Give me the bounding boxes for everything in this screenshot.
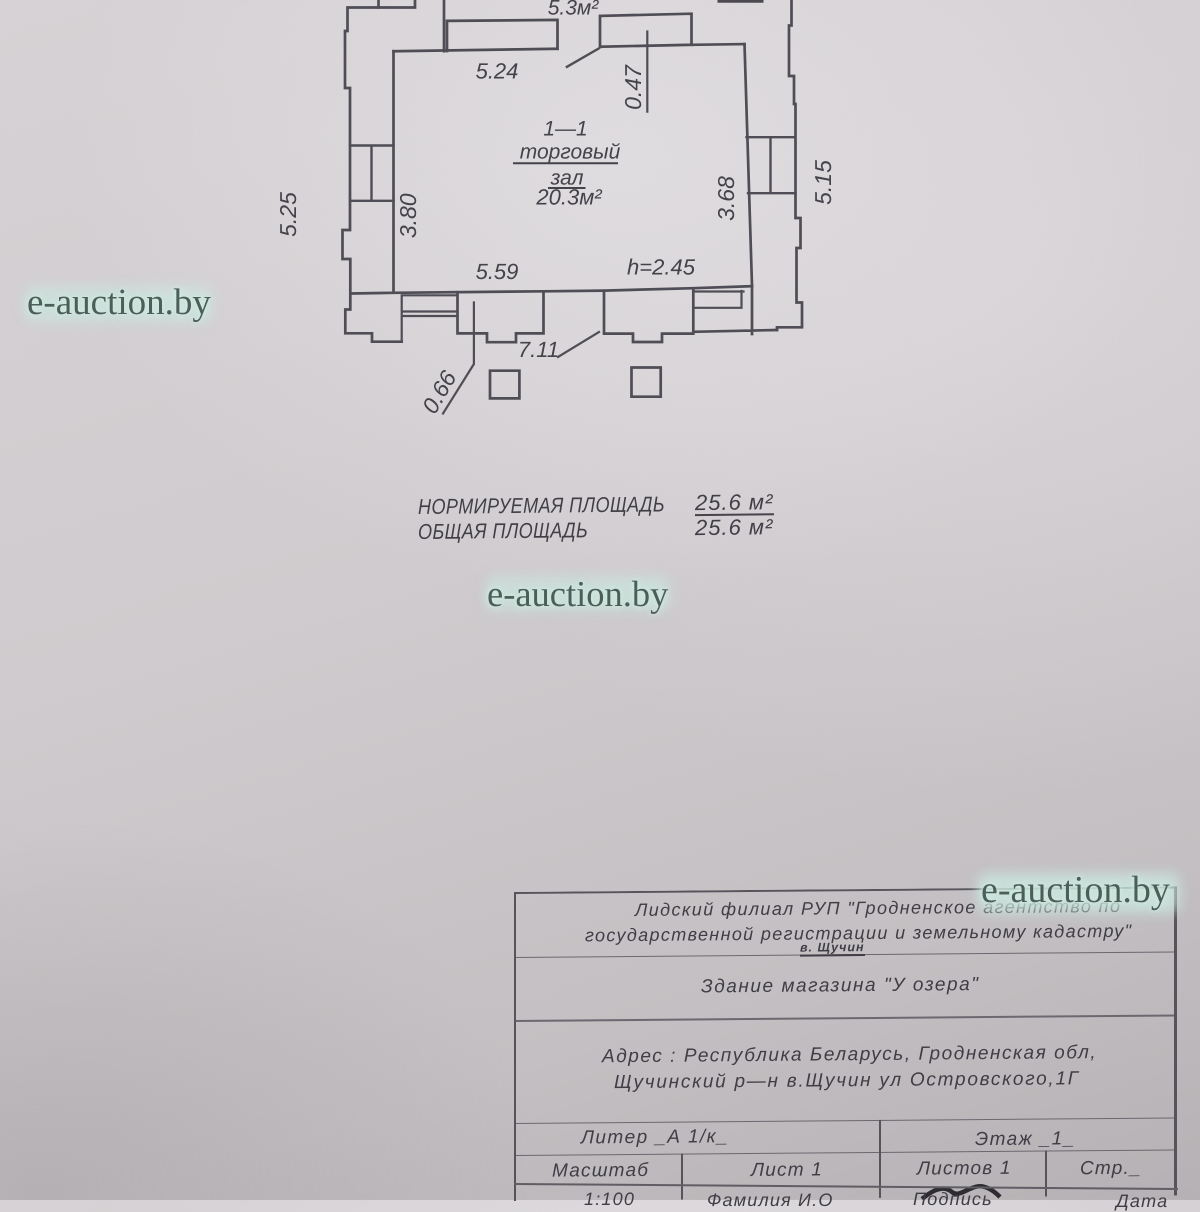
svg-text:5.15: 5.15 [810, 160, 836, 205]
svg-text:7.11: 7.11 [518, 337, 559, 362]
svg-text:1—1: 1—1 [543, 118, 587, 141]
svg-text:5.24: 5.24 [476, 59, 519, 84]
svg-text:0.66: 0.66 [417, 366, 462, 418]
svg-text:5.3м²: 5.3м² [548, 0, 600, 20]
svg-text:торговый: торговый [520, 141, 621, 164]
svg-text:3.80: 3.80 [395, 193, 421, 238]
svg-text:5.59: 5.59 [476, 259, 519, 284]
svg-text:20.3м²: 20.3м² [535, 185, 602, 210]
svg-text:0.47: 0.47 [620, 64, 646, 110]
svg-text:h=2.45: h=2.45 [627, 255, 696, 280]
svg-text:3.68: 3.68 [713, 176, 739, 221]
svg-text:5.25: 5.25 [275, 192, 301, 237]
